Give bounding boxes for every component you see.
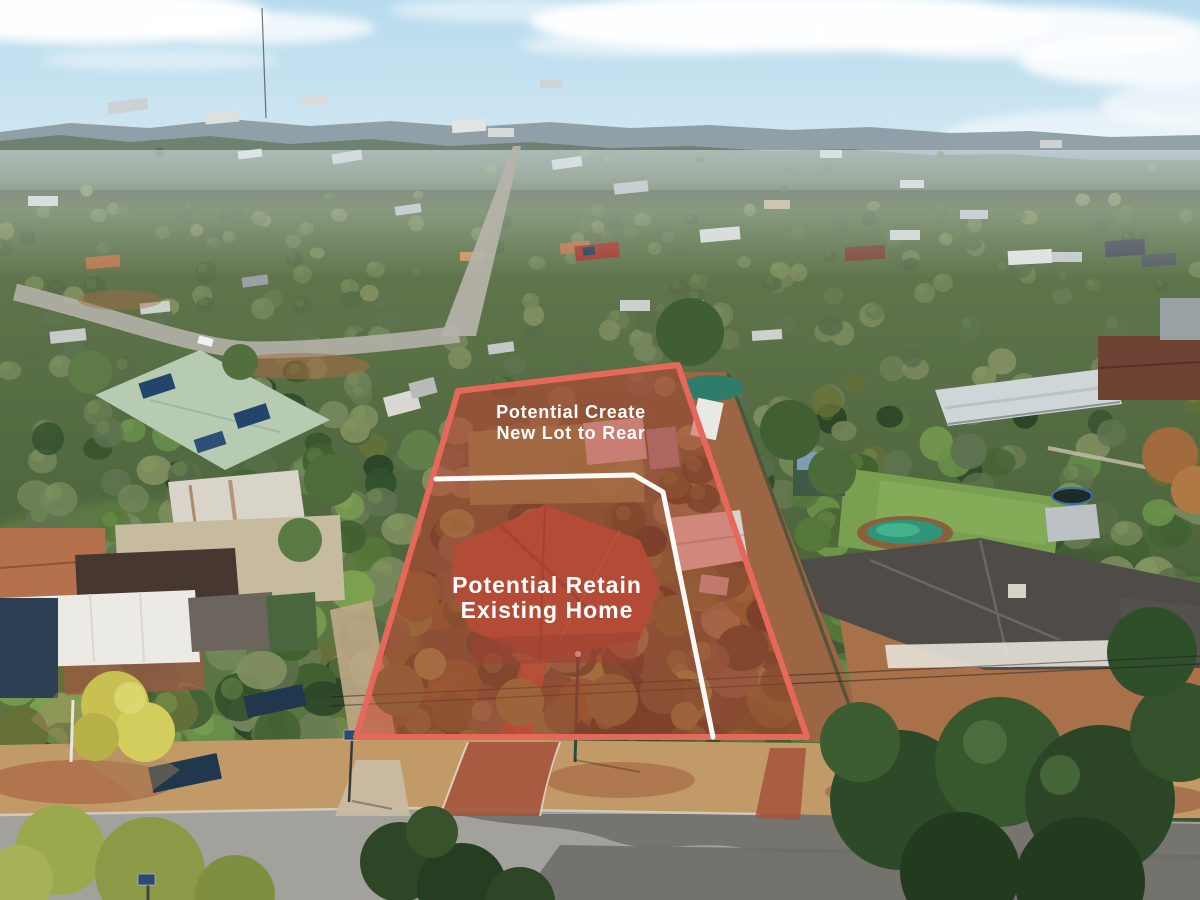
trampoline <box>1052 488 1092 504</box>
aerial-property-photo: Potential Create New Lot to Rear Potenti… <box>0 0 1200 900</box>
white-pole <box>71 700 73 762</box>
chimney <box>1008 584 1026 598</box>
solar-street-light <box>138 874 155 885</box>
aerial-scene <box>0 0 1200 900</box>
distance-haze <box>0 150 1200 280</box>
